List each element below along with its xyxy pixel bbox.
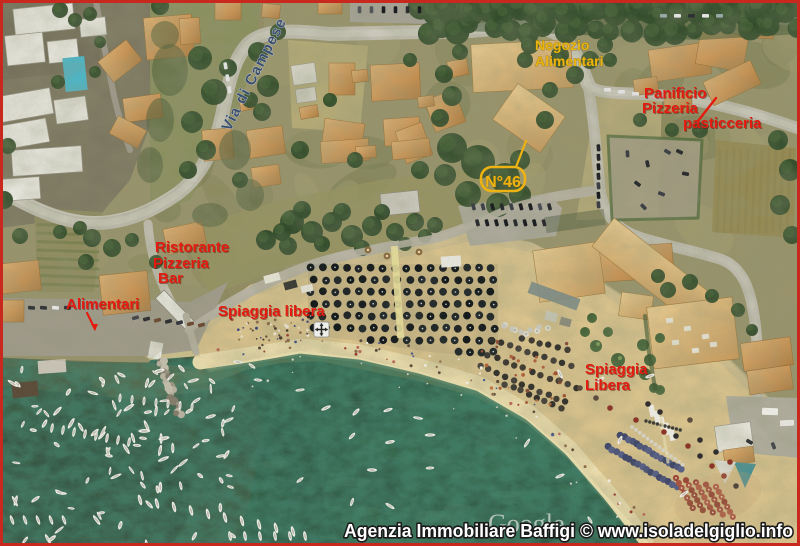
svg-text:Libera: Libera	[585, 377, 631, 394]
svg-text:Spiaggia: Spiaggia	[585, 361, 648, 378]
svg-text:N°46: N°46	[485, 174, 521, 191]
svg-text:Negozio: Negozio	[535, 37, 589, 53]
svg-text:Ristorante: Ristorante	[155, 239, 229, 256]
svg-text:Spiaggia libera: Spiaggia libera	[218, 303, 325, 320]
svg-text:Alimentari: Alimentari	[66, 296, 139, 313]
svg-text:Bar: Bar	[158, 270, 183, 287]
svg-text:pasticceria: pasticceria	[683, 115, 762, 132]
svg-text:Agenzia Immobiliare Baffigi ©: Agenzia Immobiliare Baffigi © www.isolad…	[344, 520, 793, 541]
svg-text:Alimentari: Alimentari	[535, 53, 603, 69]
